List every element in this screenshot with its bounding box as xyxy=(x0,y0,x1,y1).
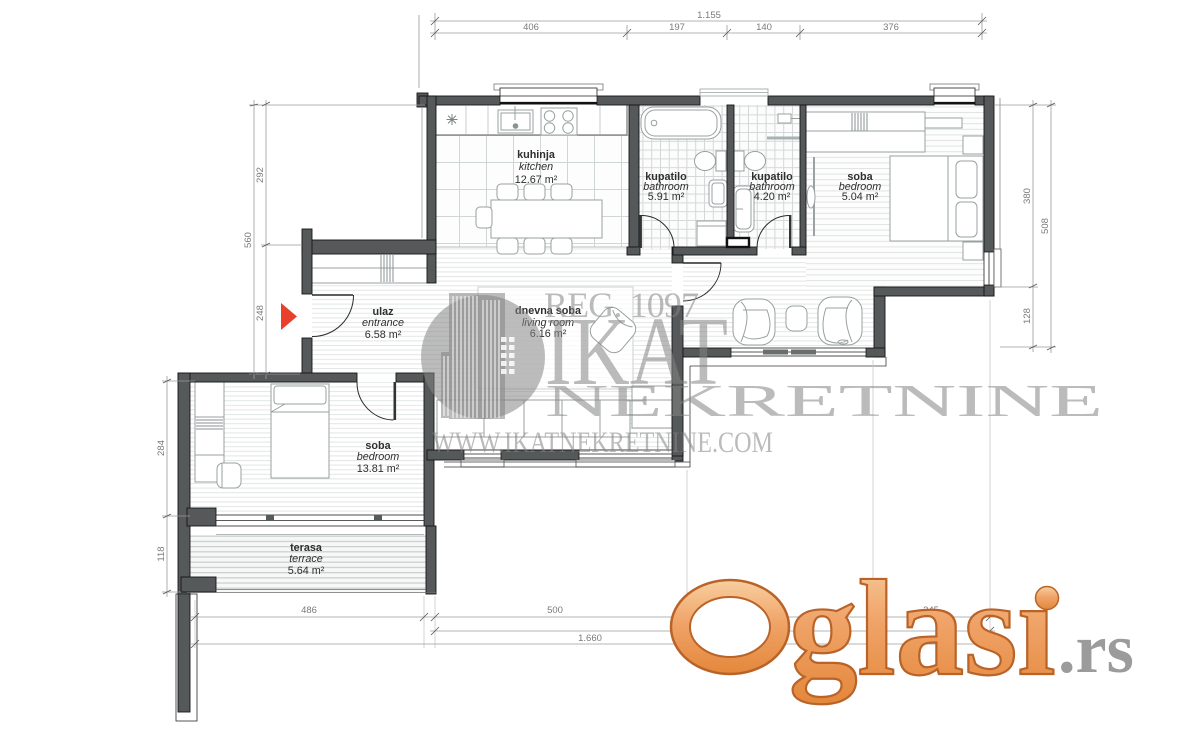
svg-text:kitchen: kitchen xyxy=(519,161,553,173)
svg-text:140: 140 xyxy=(756,22,772,33)
svg-text:terrace: terrace xyxy=(289,553,323,565)
svg-text:128: 128 xyxy=(1022,308,1033,324)
svg-text:376: 376 xyxy=(883,22,899,33)
svg-text:380: 380 xyxy=(1022,188,1033,204)
svg-text:5.04 m²: 5.04 m² xyxy=(842,191,879,203)
svg-text:118: 118 xyxy=(156,546,167,561)
svg-text:560: 560 xyxy=(243,232,254,248)
svg-text:292: 292 xyxy=(255,167,266,183)
svg-text:6.58 m²: 6.58 m² xyxy=(365,329,402,341)
svg-text:WWW.IKATNEKRETNINE.COM: WWW.IKATNEKRETNINE.COM xyxy=(432,426,773,459)
svg-text:1.660: 1.660 xyxy=(578,633,602,644)
svg-text:197: 197 xyxy=(669,22,685,33)
svg-text:12.67 m²: 12.67 m² xyxy=(515,174,558,186)
svg-text:406: 406 xyxy=(523,22,539,33)
svg-text:kuhinja: kuhinja xyxy=(517,149,556,161)
svg-text:13.81 m²: 13.81 m² xyxy=(357,463,400,475)
svg-text:5.64 m²: 5.64 m² xyxy=(288,565,325,577)
svg-text:glası: glası xyxy=(789,552,1055,704)
svg-text:486: 486 xyxy=(301,605,317,616)
svg-text:bedroom: bedroom xyxy=(357,451,400,463)
svg-text:entrance: entrance xyxy=(362,317,404,329)
svg-text:284: 284 xyxy=(156,440,167,456)
svg-text:5.91 m²: 5.91 m² xyxy=(648,191,685,203)
svg-text:500: 500 xyxy=(547,605,563,616)
svg-text:NEKRETNINE: NEKRETNINE xyxy=(545,375,1103,426)
svg-text:248: 248 xyxy=(255,305,266,321)
svg-text:1.155: 1.155 xyxy=(697,10,721,21)
svg-text:508: 508 xyxy=(1040,218,1051,234)
svg-text:4.20 m²: 4.20 m² xyxy=(754,191,791,203)
svg-text:.rs: .rs xyxy=(1058,611,1134,688)
